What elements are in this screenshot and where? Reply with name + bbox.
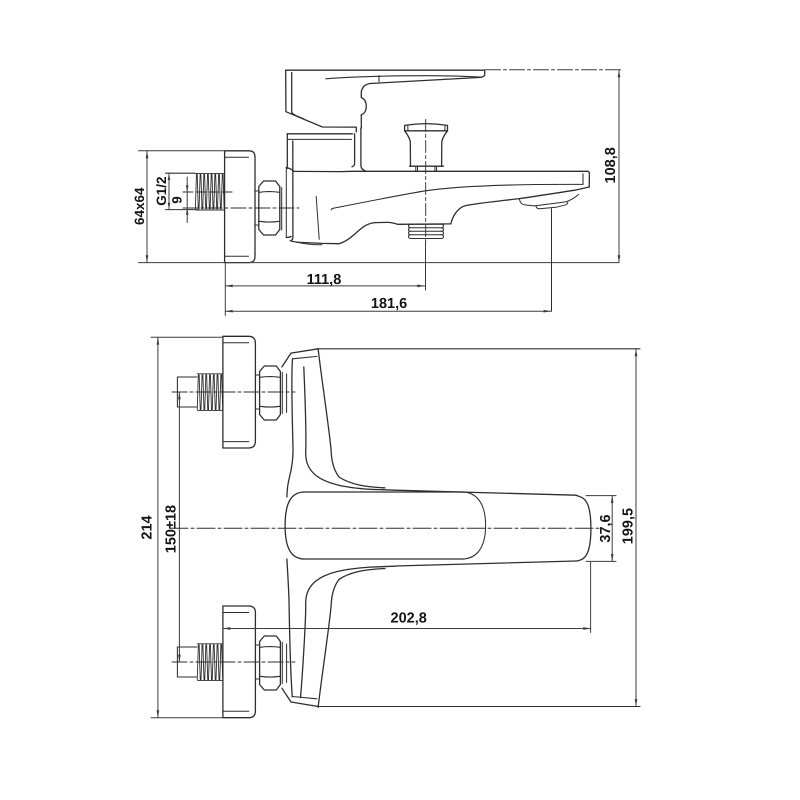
svg-text:111,8: 111,8 [307, 272, 342, 288]
svg-text:37,6: 37,6 [598, 514, 614, 542]
svg-text:150±18: 150±18 [163, 505, 179, 553]
svg-text:214: 214 [139, 515, 155, 539]
svg-text:G1/2: G1/2 [154, 177, 169, 206]
svg-text:108,8: 108,8 [603, 147, 619, 183]
svg-text:199,5: 199,5 [621, 508, 637, 544]
svg-text:9: 9 [170, 196, 185, 204]
svg-text:64x64: 64x64 [132, 187, 147, 225]
svg-text:202,8: 202,8 [391, 611, 427, 627]
svg-text:181,6: 181,6 [371, 296, 407, 312]
